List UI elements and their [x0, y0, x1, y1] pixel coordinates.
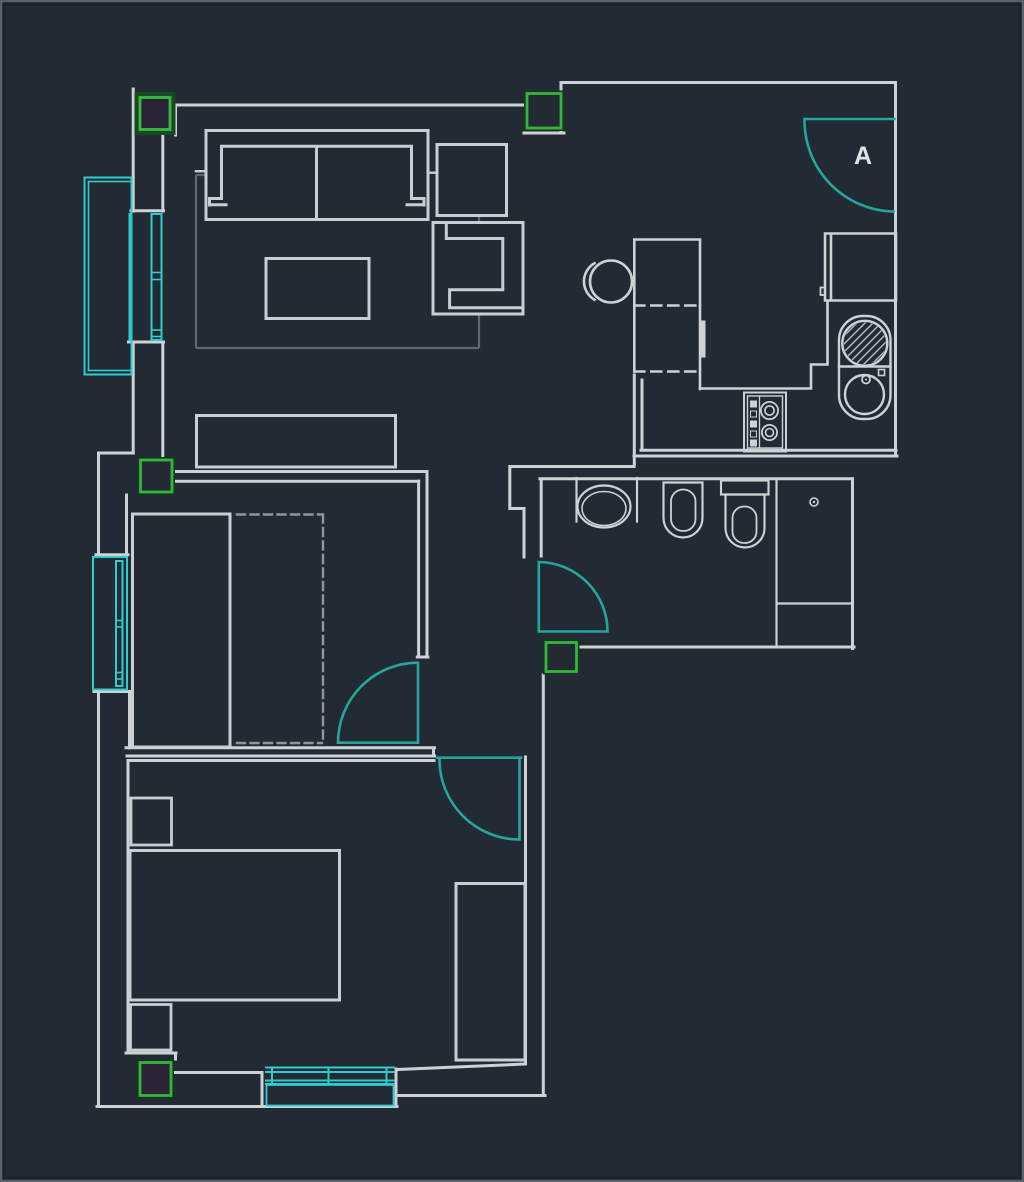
- svg-text:A: A: [854, 142, 872, 170]
